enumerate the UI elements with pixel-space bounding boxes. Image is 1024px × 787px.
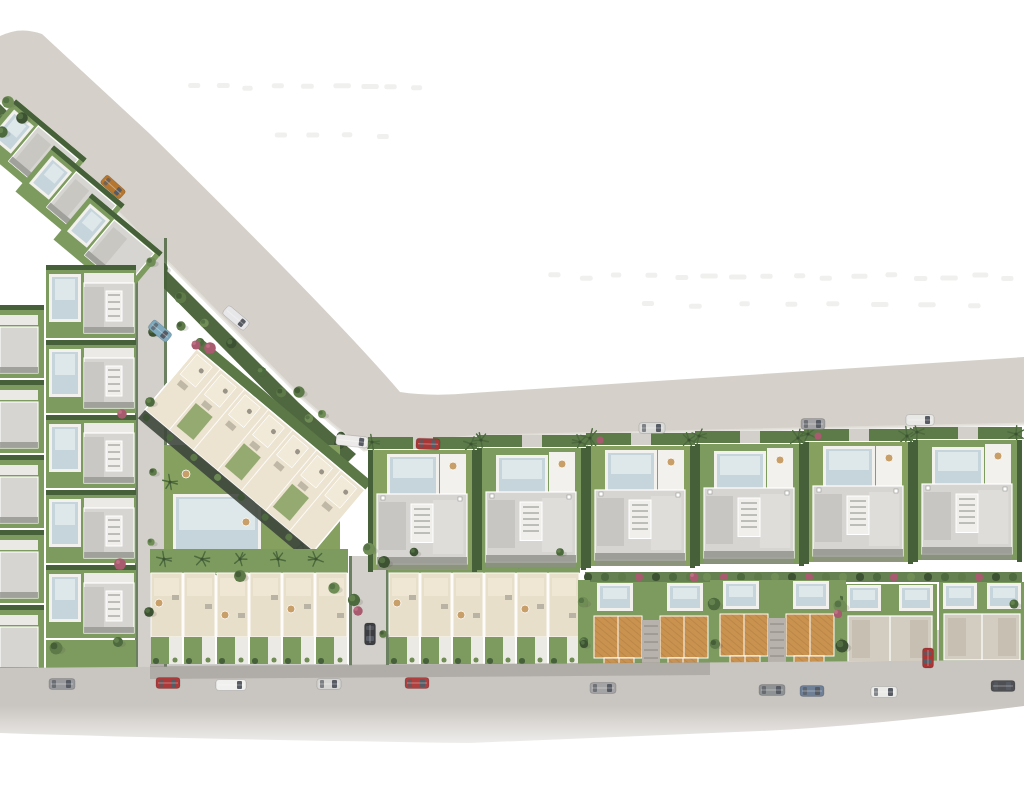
parasol-icon: [885, 454, 893, 462]
villa-lot: [46, 565, 136, 638]
front-bush: [519, 658, 525, 664]
tree-highlight: [579, 598, 584, 603]
shadow-dash: [242, 86, 252, 91]
terrace-furniture: [304, 604, 311, 609]
car: [49, 679, 75, 690]
patio: [549, 452, 575, 492]
pool: [723, 581, 759, 609]
palm-trunk: [905, 434, 908, 437]
roof-wing-right: [651, 496, 682, 550]
roof-wing-left: [706, 496, 733, 544]
terrace: [0, 315, 38, 325]
ac-unit: [894, 489, 898, 493]
tree-highlight: [51, 643, 57, 649]
shadow-dash: [611, 273, 621, 278]
palm-trunk: [915, 430, 918, 433]
car: [871, 687, 897, 698]
shadow-dash: [361, 84, 378, 89]
roof-shadow-edge: [0, 517, 38, 523]
palm-trunk: [479, 438, 482, 441]
tree-highlight: [277, 388, 282, 393]
hedge-bush: [1009, 573, 1017, 581]
tree-highlight: [145, 608, 150, 613]
ac-unit: [458, 497, 462, 501]
palm-trunk: [1014, 432, 1017, 435]
palm-trunk: [162, 557, 165, 560]
ac-unit: [490, 494, 494, 498]
pool-highlight: [729, 586, 753, 597]
pool: [49, 349, 81, 397]
parasol-icon: [155, 599, 163, 607]
roof-main: [0, 477, 38, 523]
palm-trunk: [238, 557, 241, 560]
hedge-bush: [839, 573, 847, 581]
front-shadow: [595, 560, 685, 565]
lot-hedge: [46, 265, 136, 270]
roof-shadow-edge: [0, 367, 38, 373]
hedge-bush: [771, 573, 779, 581]
pool: [49, 499, 81, 547]
pool: [899, 585, 933, 611]
front-bush: [173, 658, 178, 663]
tree-highlight: [709, 599, 715, 605]
villa-house: [922, 484, 1012, 554]
front-bush: [272, 658, 277, 663]
roof-shadow-edge: [84, 552, 134, 558]
tree-highlight: [3, 97, 9, 103]
tree-highlight: [711, 640, 716, 645]
tree-highlight: [349, 595, 355, 601]
terrace-furniture: [441, 604, 448, 609]
front-bush: [442, 658, 447, 663]
terrace-upper: [392, 578, 416, 596]
patio: [658, 450, 684, 490]
terrace-upper: [253, 578, 278, 596]
roof-wing-left: [84, 362, 104, 402]
villa-lot: [0, 530, 44, 603]
side-hedge: [581, 448, 586, 570]
car: [317, 679, 341, 690]
tree-highlight: [148, 539, 152, 543]
palm-trunk: [697, 434, 700, 437]
tree-highlight: [150, 469, 154, 473]
terrace-furniture: [271, 595, 278, 600]
pool-highlight: [829, 451, 869, 470]
tree-highlight: [319, 411, 323, 415]
terrace-furniture: [537, 604, 544, 609]
car: [405, 678, 429, 689]
tree-highlight: [380, 631, 384, 635]
roof-wing: [852, 620, 870, 658]
palm-trunk: [588, 436, 591, 439]
shadow-dash: [785, 302, 797, 307]
shadow-dash: [851, 274, 867, 279]
shadow-dash: [217, 83, 230, 88]
front-bush: [570, 658, 575, 663]
shadow-dash: [972, 273, 988, 278]
hedge-bush: [584, 573, 592, 581]
villa-lot: [692, 429, 804, 566]
ac-unit: [708, 490, 712, 494]
pool-highlight: [55, 504, 75, 525]
road-fade: [0, 705, 1024, 760]
roof-wing-left: [597, 498, 624, 546]
terrace-upper: [552, 578, 576, 596]
lot-hedge: [0, 605, 44, 610]
villa-lot: [0, 605, 44, 678]
aerial-site-plan: [0, 0, 1024, 787]
parasol-icon: [242, 518, 250, 526]
terrace-upper: [488, 578, 512, 596]
stairwell: [956, 494, 978, 533]
front-bush: [487, 658, 493, 664]
pool-highlight: [905, 590, 927, 600]
pool: [605, 450, 657, 494]
roof-shadow-edge: [84, 627, 134, 633]
shadow-dash: [700, 274, 717, 279]
pool-highlight: [55, 354, 75, 375]
terrace-furniture: [172, 595, 179, 600]
roof-shadow-edge: [704, 551, 794, 558]
tree-highlight: [114, 638, 119, 643]
roof-wing-right: [869, 492, 900, 546]
palm-trunk: [314, 557, 317, 560]
shadow-dash: [333, 83, 350, 88]
tree-highlight: [235, 571, 241, 577]
hedge-bush: [941, 573, 949, 581]
front-shadow: [486, 562, 576, 567]
driveway: [522, 435, 542, 447]
orange-villa-pair: [714, 580, 840, 670]
tree-highlight: [379, 557, 385, 563]
car: [923, 648, 934, 668]
front-bush: [285, 658, 291, 664]
stairwell: [738, 498, 760, 537]
roof-main: [0, 627, 38, 673]
side-hedge: [908, 442, 913, 564]
hedge-bush: [788, 573, 796, 581]
parasol-icon: [558, 460, 566, 468]
pink-bush: [204, 342, 216, 354]
pool-highlight: [720, 456, 760, 475]
scene-root: [0, 0, 1024, 787]
hedge-bush: [652, 573, 660, 581]
roof-wing-left: [488, 500, 515, 548]
roof-wing-left: [815, 494, 842, 542]
bottom-road: [0, 660, 1024, 760]
side-hedge: [1017, 440, 1022, 562]
ac-unit: [817, 488, 821, 492]
ac-unit: [926, 486, 930, 490]
shadow-dash: [914, 276, 927, 281]
villa-lot: [46, 490, 136, 563]
tree-highlight: [147, 258, 152, 263]
pool: [793, 581, 829, 609]
car: [216, 680, 246, 691]
roof-wing-left: [84, 437, 104, 477]
terrace-upper: [286, 578, 311, 596]
shadow-dash: [689, 304, 702, 309]
pink-bush-highlight: [206, 344, 210, 348]
front-bush: [318, 658, 324, 664]
pool-highlight: [502, 460, 542, 479]
hedge-bush: [873, 573, 881, 581]
driveway: [849, 429, 869, 441]
terrace-furniture: [238, 613, 245, 618]
terrace-upper: [520, 578, 544, 596]
tree-highlight: [329, 583, 335, 589]
shadow-dash: [272, 83, 284, 88]
car: [800, 686, 824, 697]
shadow-dash: [301, 84, 314, 89]
pool: [597, 583, 633, 611]
pool: [49, 274, 81, 322]
pool: [49, 424, 81, 472]
villa-lot: [474, 433, 588, 570]
hedge-bush: [958, 573, 966, 581]
parasol-icon: [994, 452, 1002, 460]
hedge-bush: [703, 573, 711, 581]
roof-shadow-edge: [84, 402, 134, 408]
stairwell: [629, 500, 651, 539]
terrace-upper: [154, 578, 179, 596]
hedge-bush: [754, 573, 762, 581]
shadow-dash: [729, 274, 746, 279]
pool-highlight: [55, 579, 75, 600]
shadow-dash: [306, 132, 319, 137]
terrace: [0, 465, 38, 475]
front-bush: [506, 658, 511, 663]
pool: [943, 583, 977, 609]
roof-wing-left: [84, 587, 104, 627]
tree-highlight: [557, 549, 561, 553]
tree-highlight: [837, 641, 843, 647]
villa-lot: [365, 435, 479, 572]
hedge-bush: [992, 573, 1000, 581]
villa-lot: [46, 265, 136, 338]
villa-lot: [910, 425, 1023, 562]
pool-highlight: [938, 452, 978, 471]
pool-highlight: [603, 588, 627, 599]
site-plan-svg: [0, 0, 1024, 787]
tree-highlight: [581, 641, 585, 645]
shadow-dash: [760, 274, 772, 279]
villa-lot: [0, 455, 44, 528]
shadow-dash: [940, 276, 958, 281]
terrace-furniture: [205, 604, 212, 609]
pool-highlight: [611, 455, 651, 474]
car: [156, 678, 180, 689]
hedge-bush: [737, 573, 745, 581]
shadow-dash: [342, 132, 352, 137]
terrace-furniture: [473, 613, 480, 618]
pool-highlight: [673, 588, 697, 599]
roof-shadow-edge: [0, 442, 38, 448]
patio: [876, 446, 902, 486]
terrace: [0, 390, 38, 400]
car: [365, 623, 376, 645]
side-hedge: [472, 450, 477, 572]
parasol-icon: [221, 611, 229, 619]
roof-shadow-edge: [0, 592, 38, 598]
ac-unit: [676, 493, 680, 497]
pool-highlight: [949, 588, 971, 598]
tree-highlight: [364, 544, 370, 550]
tree-highlight: [201, 319, 205, 323]
pink-bush-highlight: [354, 607, 358, 611]
parasol-icon: [667, 458, 675, 466]
parasol-icon: [449, 462, 457, 470]
side-hedge: [799, 444, 804, 566]
palm-trunk: [469, 442, 472, 445]
shadow-dash: [918, 302, 935, 307]
pool-highlight: [55, 279, 75, 300]
lot-hedge: [46, 340, 136, 345]
orange-villa-pair: [588, 582, 714, 672]
tree-highlight: [176, 293, 182, 299]
shadow-dash: [642, 301, 654, 306]
front-shadow: [922, 554, 1012, 559]
hedge-bush: [822, 573, 830, 581]
terrace-furniture: [505, 595, 512, 600]
pool: [49, 574, 81, 622]
villa-lot: [46, 415, 136, 488]
pink-bush-highlight: [834, 610, 838, 614]
shadow-dash: [826, 301, 839, 306]
shadow-dash: [580, 276, 593, 281]
side-hedge: [804, 442, 809, 564]
pink-bush-highlight: [192, 341, 196, 345]
tree-highlight: [227, 339, 232, 344]
front-bush: [423, 658, 429, 664]
driveway: [958, 427, 978, 439]
pool-highlight: [853, 590, 875, 600]
pink-bush: [815, 433, 822, 440]
lot-hedge: [0, 380, 44, 385]
car: [590, 683, 616, 694]
rear-garden-band: [150, 549, 348, 573]
terrace-upper: [187, 578, 212, 596]
ac-unit: [1003, 487, 1007, 491]
front-shadow: [813, 556, 903, 561]
roof-shadow-edge: [595, 553, 685, 560]
terrace: [0, 615, 38, 625]
roof-wing-right: [978, 490, 1009, 544]
villa-lot: [581, 429, 696, 568]
terrace: [0, 540, 38, 550]
front-bush: [219, 658, 225, 664]
villa-house: [595, 490, 685, 560]
car: [801, 419, 825, 430]
roof-wing-right: [433, 500, 464, 554]
tree-highlight: [1010, 600, 1015, 605]
roof-wing-left: [924, 492, 951, 540]
car: [759, 685, 785, 696]
front-bush: [538, 658, 543, 663]
courtyard: [642, 620, 660, 666]
pool-highlight: [393, 459, 433, 478]
lot-hedge: [0, 530, 44, 535]
pool-highlight: [799, 586, 823, 597]
tree-highlight: [305, 415, 309, 419]
palm-trunk: [370, 440, 373, 443]
roof-wing-right: [760, 494, 791, 548]
roof-shadow-edge: [84, 327, 134, 333]
hedge-bush: [907, 573, 915, 581]
roof-wing-left: [84, 287, 104, 327]
roof-wing-left: [379, 502, 406, 550]
shadow-dash: [411, 85, 422, 90]
ac-unit: [785, 491, 789, 495]
front-bush: [252, 658, 258, 664]
courtyard: [768, 618, 786, 664]
hedge-bush: [890, 573, 898, 581]
front-bush: [186, 658, 192, 664]
pink-bush: [114, 558, 126, 570]
front-bush: [153, 658, 159, 664]
patio: [440, 454, 466, 494]
pool: [823, 446, 875, 490]
tree-highlight: [17, 113, 23, 119]
front-bush: [338, 658, 343, 663]
tree-highlight: [835, 601, 841, 607]
shadow-dash: [886, 272, 898, 277]
pool-highlight: [55, 429, 75, 450]
parasol-icon: [457, 611, 465, 619]
ac-unit: [567, 495, 571, 499]
hedge-bush: [720, 573, 728, 581]
front-bush: [410, 658, 415, 663]
tree-highlight: [294, 387, 300, 393]
side-hedge: [477, 448, 482, 570]
car: [991, 681, 1015, 692]
shadow-dash: [188, 83, 200, 88]
car: [416, 438, 440, 450]
lot-hedge: [0, 455, 44, 460]
patio: [767, 448, 793, 488]
front-bush: [239, 658, 244, 663]
shadow-dash: [739, 301, 749, 306]
palm-trunk: [168, 480, 171, 483]
pool: [387, 454, 439, 498]
pool: [667, 583, 703, 611]
shadow-dash: [1001, 276, 1013, 281]
palm-trunk: [276, 557, 279, 560]
shadow-dash: [377, 134, 389, 139]
front-bush: [391, 658, 397, 664]
tree-highlight: [258, 368, 263, 373]
roof-wing: [948, 618, 966, 656]
shadow-dash: [384, 84, 396, 89]
hedge-bush: [601, 573, 609, 581]
roof-wing-right: [542, 498, 573, 552]
front-bush: [305, 658, 310, 663]
lower-right-row: [578, 572, 1024, 674]
front-shadow: [704, 558, 794, 563]
driveway: [740, 431, 760, 443]
roof-wing: [998, 618, 1016, 656]
stairwell: [847, 496, 869, 535]
villa-lot: [0, 305, 44, 378]
hedge-bush: [924, 573, 932, 581]
parasol-icon: [287, 605, 295, 613]
side-hedge: [690, 446, 695, 568]
pool: [847, 585, 881, 611]
ac-unit: [381, 496, 385, 500]
pink-bush-highlight: [116, 560, 120, 564]
pool-highlight: [993, 588, 1015, 598]
patio: [985, 444, 1011, 484]
